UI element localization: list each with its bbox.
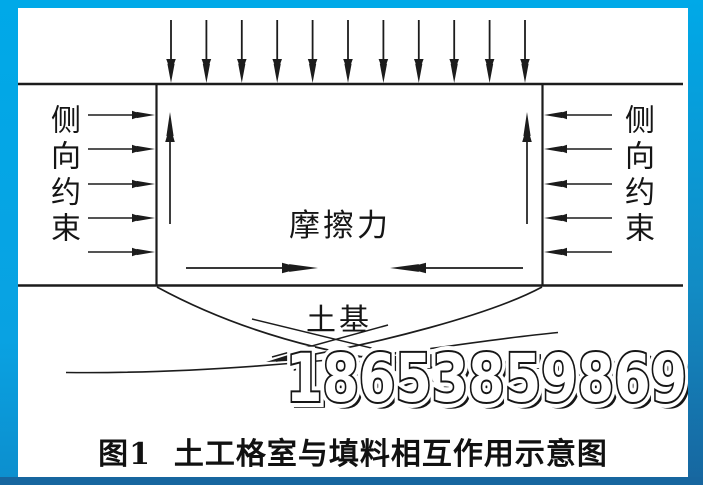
load-down-arrow-icon	[449, 59, 459, 72]
figure-frame: 18653859869 18653859869 18653859869 侧向约束…	[0, 0, 703, 485]
load-down-arrow-icon	[379, 59, 389, 72]
load-down-arrow-icon	[414, 59, 424, 72]
load-down-arrow-icon	[308, 59, 318, 72]
friction-label: 摩擦力	[289, 200, 391, 245]
constraint-left-arrow-icon	[554, 145, 567, 153]
load-down-arrow-icon	[520, 59, 530, 72]
subgrade-label: 土基	[306, 295, 372, 339]
load-down-arrow-icon	[202, 59, 212, 72]
load-down-arrow-icon	[485, 59, 495, 72]
figure-caption: 图1 土工格室与填料相互作用示意图	[18, 429, 688, 473]
right-constraint-label: 侧向约束	[620, 104, 652, 248]
load-down-arrow-icon	[237, 59, 247, 72]
friction-right-arrow-icon	[282, 263, 302, 273]
constraint-right-arrow-icon	[132, 180, 145, 188]
constraint-right-arrow-icon	[132, 145, 145, 153]
friction-up-arrow-icon	[165, 126, 175, 143]
constraint-left-arrow-icon	[554, 214, 567, 222]
frame-border-top	[0, 0, 703, 8]
friction-up-arrow-icon	[522, 126, 532, 143]
constraint-left-arrow-icon	[554, 111, 567, 119]
friction-left-arrow-icon	[406, 263, 426, 273]
watermark-text: 18653859869	[286, 340, 687, 417]
frame-border-bottom	[0, 477, 703, 485]
left-constraint-label: 侧向约束	[46, 104, 78, 248]
frame-border-left	[0, 0, 18, 485]
constraint-left-arrow-icon	[554, 180, 567, 188]
load-down-arrow-icon	[166, 59, 176, 72]
load-down-arrow-icon	[343, 59, 353, 72]
constraint-left-arrow-icon	[554, 248, 567, 256]
constraint-right-arrow-icon	[132, 214, 145, 222]
frame-border-right	[688, 0, 703, 485]
constraint-right-arrow-icon	[132, 111, 145, 119]
load-down-arrow-icon	[272, 59, 282, 72]
constraint-right-arrow-icon	[132, 248, 145, 256]
